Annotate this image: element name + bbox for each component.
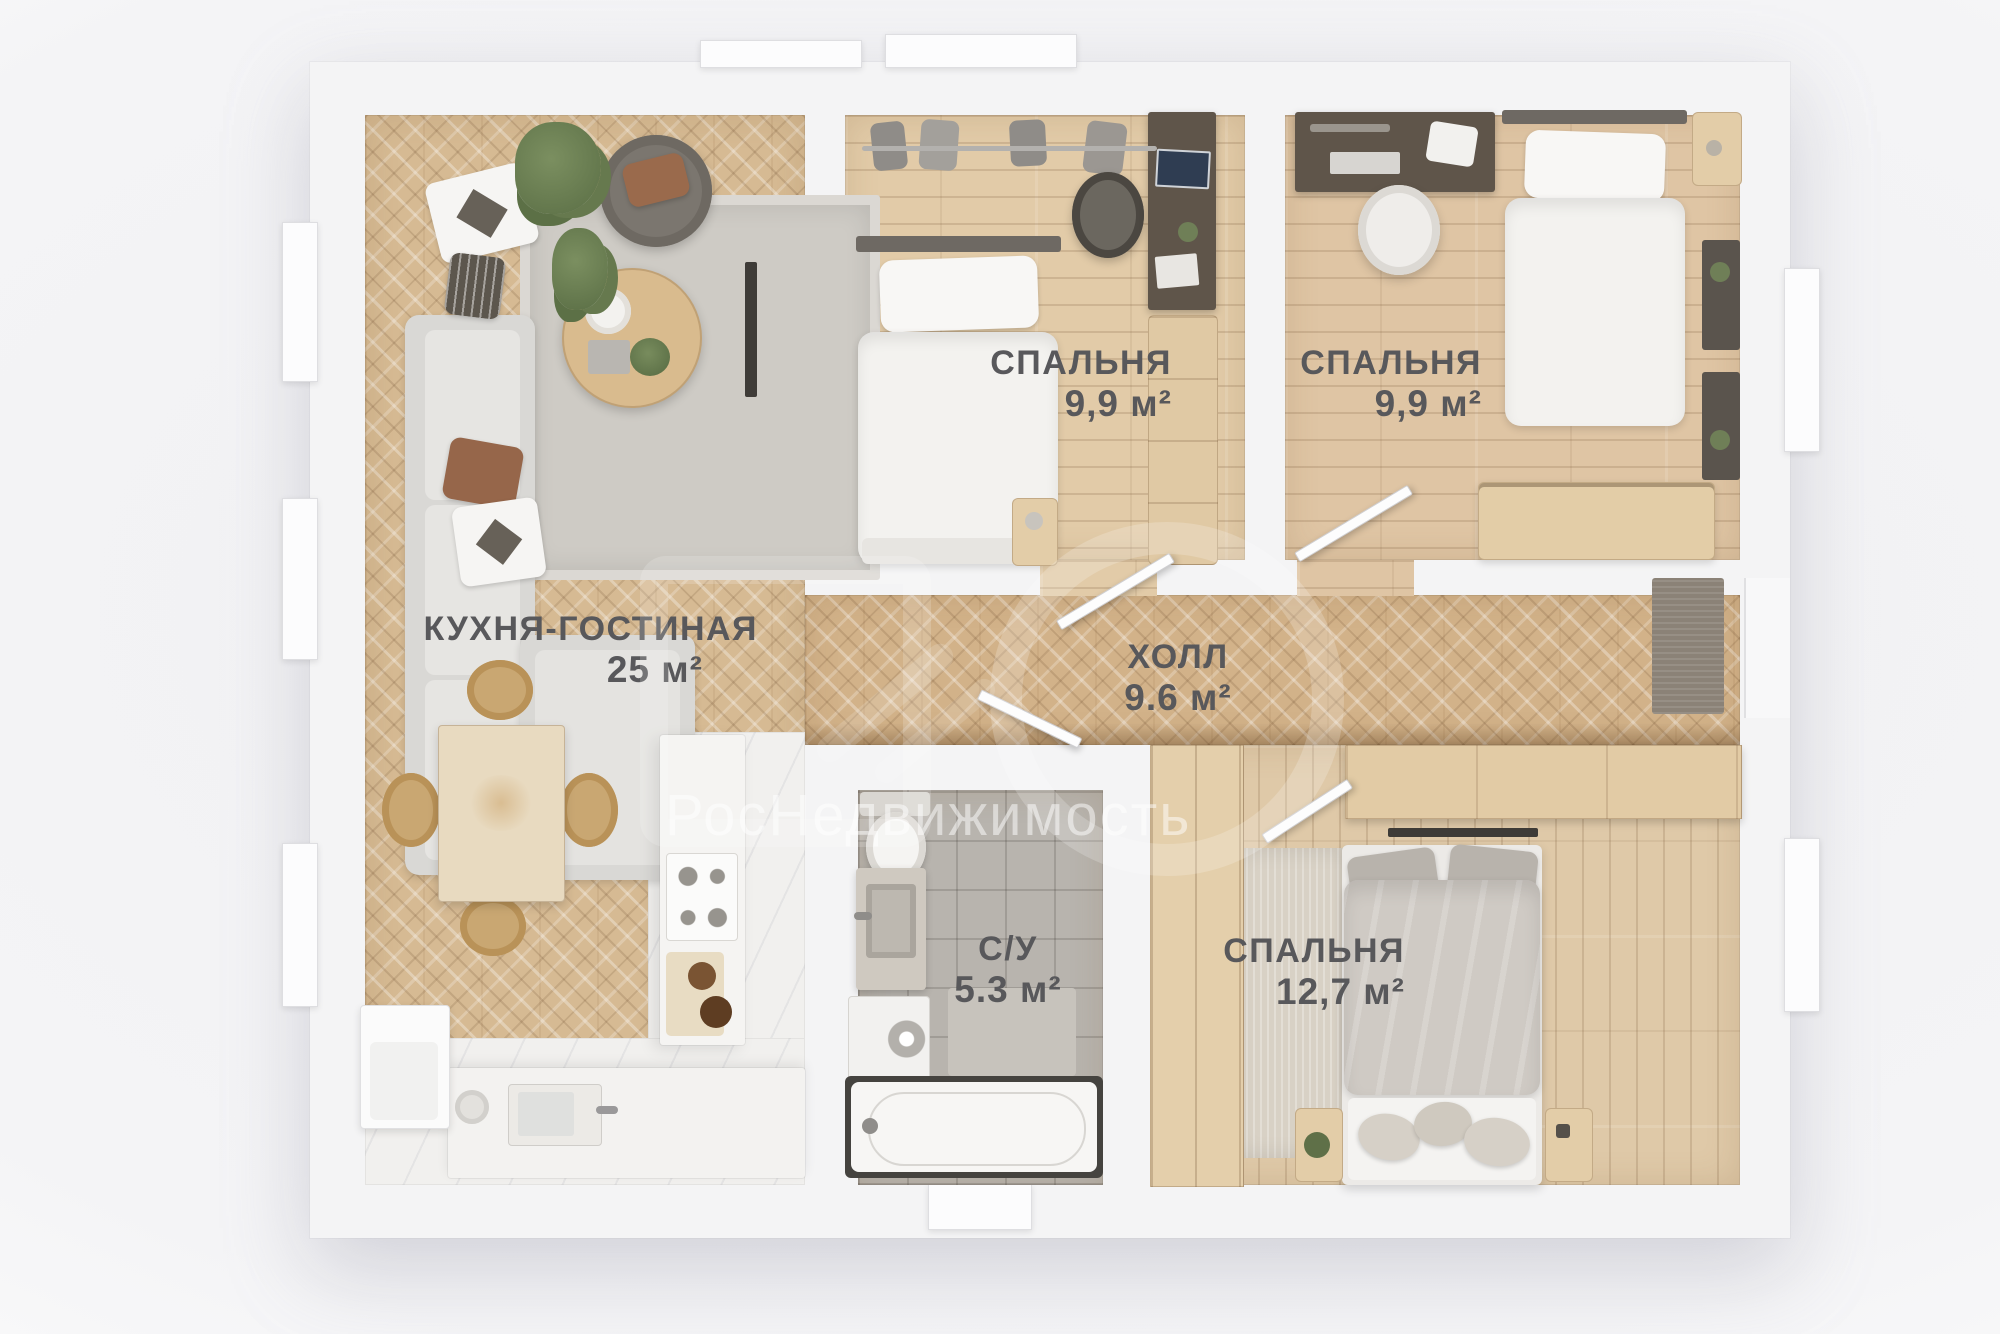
window — [282, 222, 318, 382]
kitchen-counter — [448, 1068, 805, 1178]
table-plant — [630, 338, 670, 376]
room-label-bedroom-bottom-right: СПАЛЬНЯ 12,7 м² — [1155, 932, 1405, 1013]
patterned-pillow — [443, 252, 506, 320]
window — [282, 843, 318, 1007]
faucet — [596, 1106, 618, 1114]
nightstand — [1545, 1108, 1593, 1182]
stove — [666, 853, 738, 941]
cup — [1706, 140, 1722, 156]
shelf-plant — [1710, 430, 1730, 450]
room-area: 12,7 м² — [1155, 971, 1405, 1013]
bed-pillow — [1524, 130, 1666, 203]
sink-basin — [518, 1092, 574, 1136]
room-area: 9,9 м² — [1232, 383, 1482, 425]
watermark-brand-text: РосНедвижимость — [665, 782, 1191, 849]
window — [1784, 268, 1820, 452]
faucet — [854, 912, 872, 920]
room-label-bedroom-top-right: СПАЛЬНЯ 9,9 м² — [1232, 344, 1482, 425]
room-area: 5.3 м² — [928, 969, 1088, 1011]
eucalyptus-wreath — [1304, 1132, 1330, 1158]
room-label-bedroom-top-middle: СПАЛЬНЯ 9,9 м² — [922, 344, 1172, 425]
window — [1784, 838, 1820, 1012]
dresser — [1478, 482, 1715, 560]
sink-basin — [866, 884, 916, 958]
washing-machine — [848, 996, 930, 1082]
wall-shelf — [1702, 372, 1740, 480]
window — [885, 34, 1077, 68]
food-bowl — [700, 996, 732, 1028]
table-lamp — [1025, 512, 1043, 530]
room-label-bathroom: С/У 5.3 м² — [928, 930, 1088, 1011]
tray — [588, 340, 630, 374]
dining-chair — [382, 773, 440, 847]
floor-plan-render: КУХНЯ-ГОСТИНАЯ 25 м² СПАЛЬНЯ 9,9 м² СПАЛ… — [0, 0, 2000, 1334]
bed-duvet — [1505, 198, 1685, 426]
room-name: С/У — [928, 930, 1088, 969]
desk-chair — [1072, 172, 1144, 258]
drain-cap — [455, 1090, 489, 1124]
desk-shelf-items — [1310, 124, 1390, 132]
window — [282, 498, 318, 660]
room-name: СПАЛЬНЯ — [922, 344, 1172, 383]
pampas-decor — [468, 775, 534, 831]
room-name: СПАЛЬНЯ — [1232, 344, 1482, 383]
bed-headboard — [1502, 110, 1687, 124]
room-area: 9,9 м² — [922, 383, 1172, 425]
entry-door — [1744, 578, 1790, 718]
wall-shelf — [1702, 240, 1740, 350]
papers — [1155, 253, 1200, 289]
bath-faucet — [862, 1118, 878, 1134]
bed-headboard — [856, 236, 1061, 252]
desk-cloth — [1425, 120, 1479, 167]
door-threshold — [1297, 560, 1414, 596]
egg-chair — [1358, 185, 1440, 275]
entry-mat — [1652, 578, 1724, 714]
clothes-rail — [862, 146, 1157, 151]
keyboard — [1330, 152, 1400, 174]
nightstand-item — [1556, 1124, 1570, 1138]
window — [928, 1184, 1032, 1230]
tv — [745, 262, 757, 397]
patterned-pillow — [451, 496, 547, 587]
food-bowl — [688, 962, 716, 990]
window — [700, 40, 862, 68]
room-name: СПАЛЬНЯ — [1155, 932, 1405, 971]
hanging-clothes — [918, 119, 959, 172]
hanging-clothes — [1009, 119, 1047, 167]
hall-wardrobe — [1345, 745, 1742, 819]
laptop — [1155, 149, 1211, 190]
bed-pillow — [879, 255, 1039, 332]
bathtub-basin — [868, 1092, 1086, 1166]
desk-plant — [1178, 222, 1198, 242]
nightstand — [1012, 498, 1058, 566]
dining-chair — [460, 896, 526, 956]
dining-chair — [560, 773, 618, 847]
shelf-plant — [1710, 262, 1730, 282]
fridge-top — [370, 1042, 438, 1120]
tv — [1388, 828, 1538, 837]
